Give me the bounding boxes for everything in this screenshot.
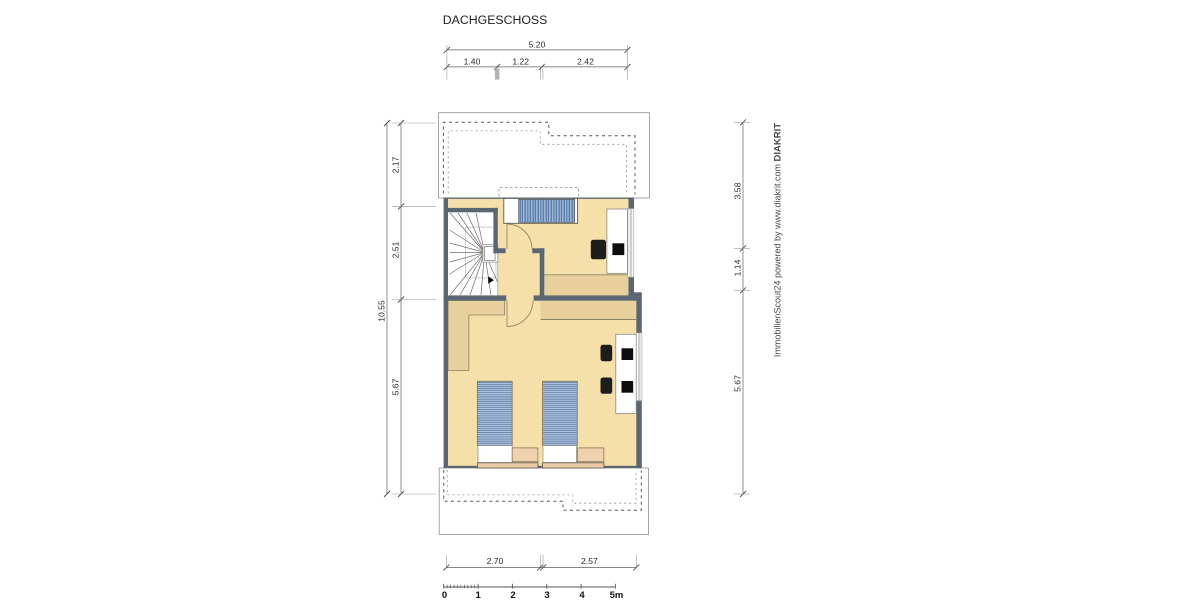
svg-text:1: 1 (476, 590, 482, 600)
svg-text:ImmobilienScout24 powered by w: ImmobilienScout24 powered by www.diakrit… (773, 123, 784, 357)
svg-text:2.51: 2.51 (391, 241, 401, 258)
svg-text:5.67: 5.67 (733, 375, 743, 392)
svg-text:2.70: 2.70 (487, 556, 504, 566)
svg-text:DACHGESCHOSS: DACHGESCHOSS (443, 13, 548, 27)
svg-text:0: 0 (442, 590, 447, 600)
svg-text:10.55: 10.55 (377, 300, 387, 322)
svg-text:5.20: 5.20 (529, 40, 546, 50)
svg-text:2.17: 2.17 (391, 156, 401, 173)
svg-text:2.42: 2.42 (577, 57, 594, 67)
svg-text:3.58: 3.58 (733, 182, 743, 199)
svg-text:4: 4 (579, 590, 585, 600)
svg-text:2: 2 (510, 590, 515, 600)
svg-text:1.22: 1.22 (512, 57, 529, 67)
svg-text:5.67: 5.67 (391, 378, 401, 395)
svg-text:1.14: 1.14 (733, 259, 743, 276)
svg-text:2.57: 2.57 (581, 556, 598, 566)
svg-text:1.40: 1.40 (464, 57, 481, 67)
svg-text:5m: 5m (610, 590, 624, 600)
svg-text:3: 3 (544, 590, 549, 600)
